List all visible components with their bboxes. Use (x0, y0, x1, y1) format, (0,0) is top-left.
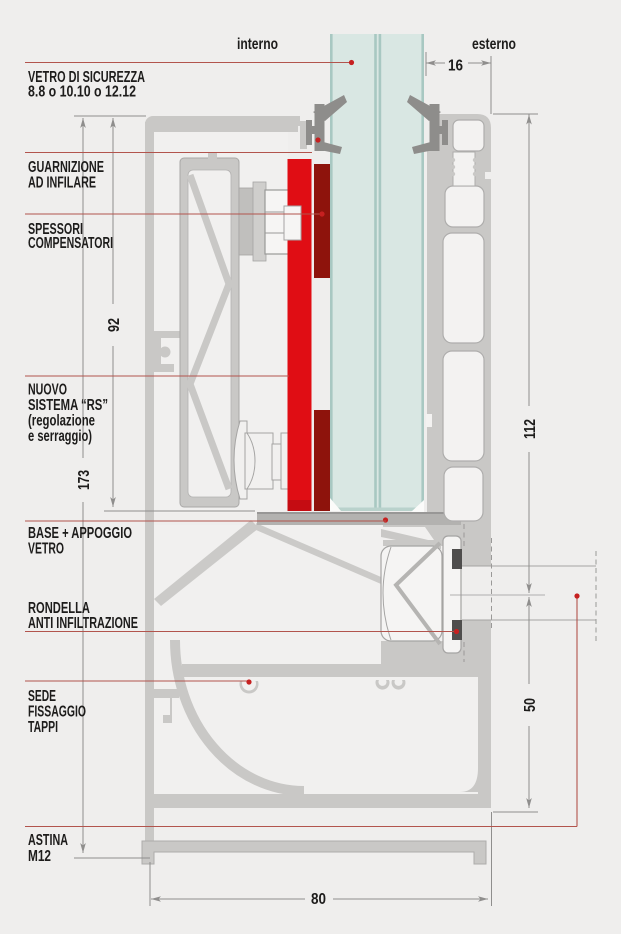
svg-text:BASE + APPOGGIO: BASE + APPOGGIO (28, 525, 132, 542)
svg-text:16: 16 (448, 58, 463, 75)
svg-text:ASTINA: ASTINA (28, 832, 68, 849)
svg-text:FISSAGGIO: FISSAGGIO (28, 704, 86, 721)
svg-text:SISTEMA “RS”: SISTEMA “RS” (28, 397, 108, 414)
svg-text:COMPENSATORI: COMPENSATORI (28, 235, 113, 252)
svg-text:ANTI INFILTRAZIONE: ANTI INFILTRAZIONE (28, 615, 138, 632)
svg-text:VETRO: VETRO (28, 541, 64, 558)
svg-text:interno: interno (237, 36, 278, 53)
svg-text:8.8 o 10.10 o 12.12: 8.8 o 10.10 o 12.12 (28, 84, 136, 101)
svg-text:M12: M12 (28, 848, 51, 865)
svg-text:GUARNIZIONE: GUARNIZIONE (28, 159, 104, 176)
svg-text:esterno: esterno (472, 36, 516, 53)
svg-text:80: 80 (311, 891, 326, 908)
svg-text:(regolazione: (regolazione (28, 413, 95, 430)
svg-text:50: 50 (522, 698, 539, 712)
svg-text:173: 173 (76, 470, 93, 490)
svg-text:TAPPI: TAPPI (28, 719, 58, 736)
svg-text:AD INFILARE: AD INFILARE (28, 175, 96, 192)
svg-text:92: 92 (106, 318, 123, 332)
svg-text:NUOVO: NUOVO (28, 382, 67, 399)
svg-text:e serraggio): e serraggio) (28, 428, 92, 445)
svg-text:SEDE: SEDE (28, 688, 56, 705)
svg-text:112: 112 (522, 419, 539, 439)
